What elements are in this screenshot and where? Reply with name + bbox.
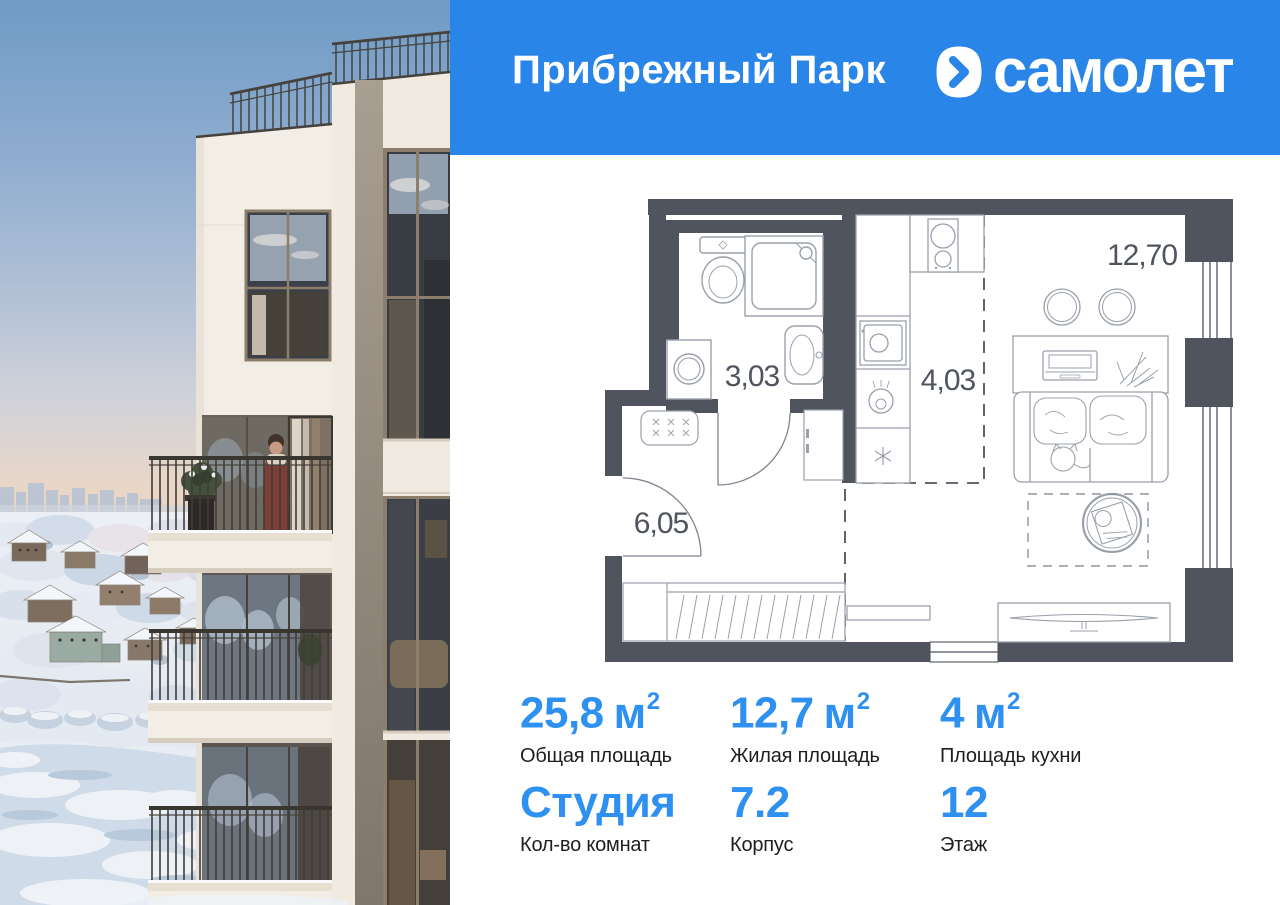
kitchen-area-label: 4,03 [921,364,976,397]
railing-floor3 [149,806,332,883]
washing-machine [667,340,711,399]
stat-total-area: 25,8м2 Общая площадь [520,683,672,768]
upper-window [246,211,330,360]
stat-total-area-label: Общая площадь [520,745,672,768]
wardrobe [623,583,845,641]
brand-logo: самолет [936,44,1233,100]
listing-card: Прибрежный Парк самолет [0,0,1280,905]
stat-floor-value: 12 [940,781,988,825]
stat-living-area-value: 12,7м2 [730,683,880,736]
stat-rooms-label: Кол-во комнат [520,834,675,857]
facade-pier [355,80,383,905]
brand-name: самолет [993,46,1233,98]
stat-total-area-value: 25,8м2 [520,683,672,736]
samolet-logo-icon [936,46,982,98]
project-title: Прибрежный Парк [512,50,886,90]
floorplan: 3,03 4,03 6,05 12,70 [450,155,1280,670]
project-header: Прибрежный Парк самолет [450,0,1280,155]
stools [1044,289,1135,325]
hallway-area-label: 6,05 [634,507,689,540]
building-photo [0,0,450,905]
kitchen-fixtures [856,215,984,483]
rug [1083,494,1141,552]
stat-kitchen-area-value: 4м2 [940,683,1081,736]
stat-kitchen-area-label: Площадь кухни [940,745,1081,768]
railing-floor2 [149,629,332,703]
railing-floor1 [149,456,332,533]
stat-building: 7.2 Корпус [730,781,793,857]
kitchen-sink [860,321,906,365]
building-photo-svg [0,0,450,905]
laptop [1043,351,1097,380]
stove [928,219,958,272]
hall-cabinet [804,410,843,480]
shower [745,236,823,316]
stat-kitchen-area: 4м2 Площадь кухни [940,683,1081,768]
doormat [641,411,698,445]
stat-building-label: Корпус [730,834,793,857]
bathroom-area-label: 3,03 [725,360,780,393]
living-area-label: 12,70 [1107,239,1177,272]
bathroom-sink [785,326,823,384]
stat-floor: 12 Этаж [940,781,988,857]
stat-living-area-label: Жилая площадь [730,745,880,768]
toilet [700,237,747,303]
stat-rooms-value: Студия [520,781,675,825]
floorplan-svg: 3,03 4,03 6,05 12,70 [450,155,1280,670]
sofa-bed [1014,392,1168,482]
stat-rooms: Студия Кол-во комнат [520,781,675,857]
stat-building-value: 7.2 [730,781,793,825]
stat-floor-label: Этаж [940,834,988,857]
tv-console [998,603,1170,642]
right-windows [383,148,450,905]
stat-living-area: 12,7м2 Жилая площадь [730,683,880,768]
apartment-stats: 25,8м2 Общая площадь 12,7м2 Жилая площад… [450,665,1280,905]
low-shelf [847,606,930,620]
